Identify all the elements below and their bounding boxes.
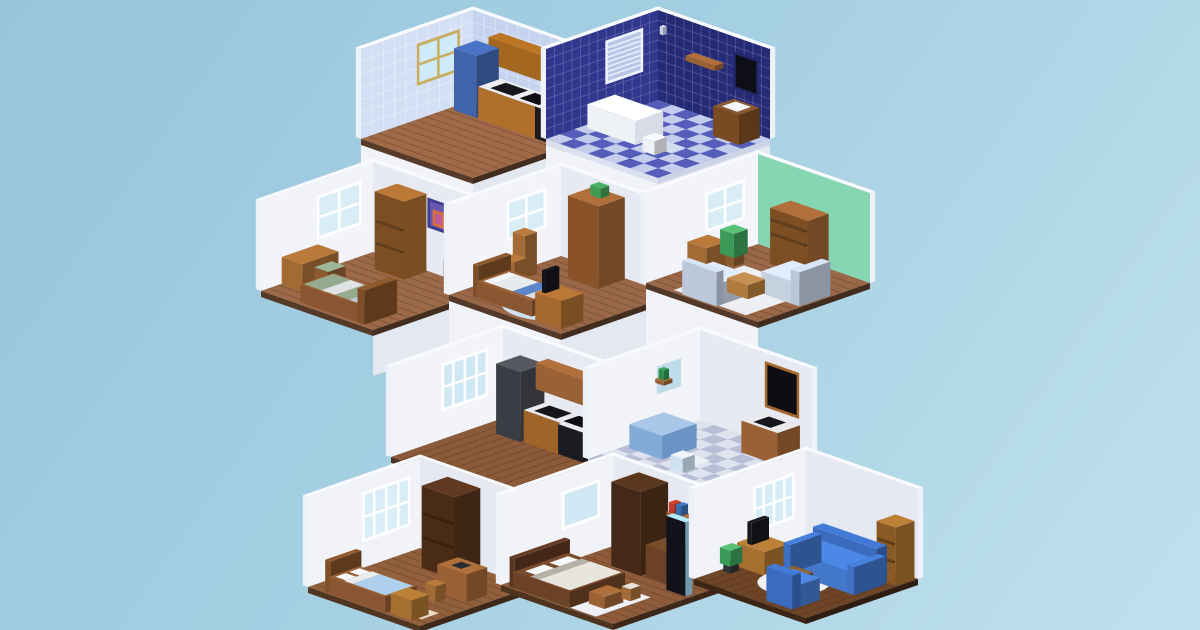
left-wall-end <box>444 203 449 295</box>
shower-head <box>663 26 666 35</box>
books-red <box>669 502 674 514</box>
left-wall-end <box>356 47 361 139</box>
wardrobe <box>599 197 625 288</box>
tv-flatscreen <box>747 522 751 546</box>
footboard <box>358 288 365 324</box>
dark-wardrobe <box>611 482 640 576</box>
standing-mirror <box>666 516 685 597</box>
bookshelf <box>375 191 404 279</box>
left-wall-end <box>641 191 646 283</box>
left-wall-end <box>541 47 546 139</box>
tall-shelf <box>525 232 537 278</box>
sofa-arm <box>847 565 854 595</box>
fridge-blue <box>454 48 476 118</box>
shower-head <box>660 26 664 35</box>
left-wall-end <box>303 495 308 587</box>
green-bottle <box>659 369 664 381</box>
sofa-right-back <box>791 269 800 306</box>
tv-flatscreen <box>542 270 546 293</box>
right-wall-end <box>870 191 875 283</box>
isometric-house-render <box>0 0 1200 630</box>
right-wall-end <box>812 367 817 459</box>
green-bottle <box>664 369 669 381</box>
right-wall-end <box>918 487 923 579</box>
left-wall-end <box>689 487 694 579</box>
plant-leaves <box>734 229 748 258</box>
fridge-gray <box>496 364 520 442</box>
loveseat-back <box>717 270 724 306</box>
left-wall-end <box>496 493 501 585</box>
books-blue <box>676 505 681 517</box>
armchair-back <box>792 573 801 610</box>
scene-svg <box>0 0 1200 630</box>
right-wall-end <box>770 47 775 139</box>
bookshelf <box>404 194 426 280</box>
left-wall-end <box>583 367 588 459</box>
bookshelf <box>896 521 915 586</box>
left-wall-end <box>386 365 391 457</box>
left-wall-end <box>256 199 261 291</box>
wardrobe <box>568 196 599 289</box>
plant-leaves <box>720 229 734 258</box>
